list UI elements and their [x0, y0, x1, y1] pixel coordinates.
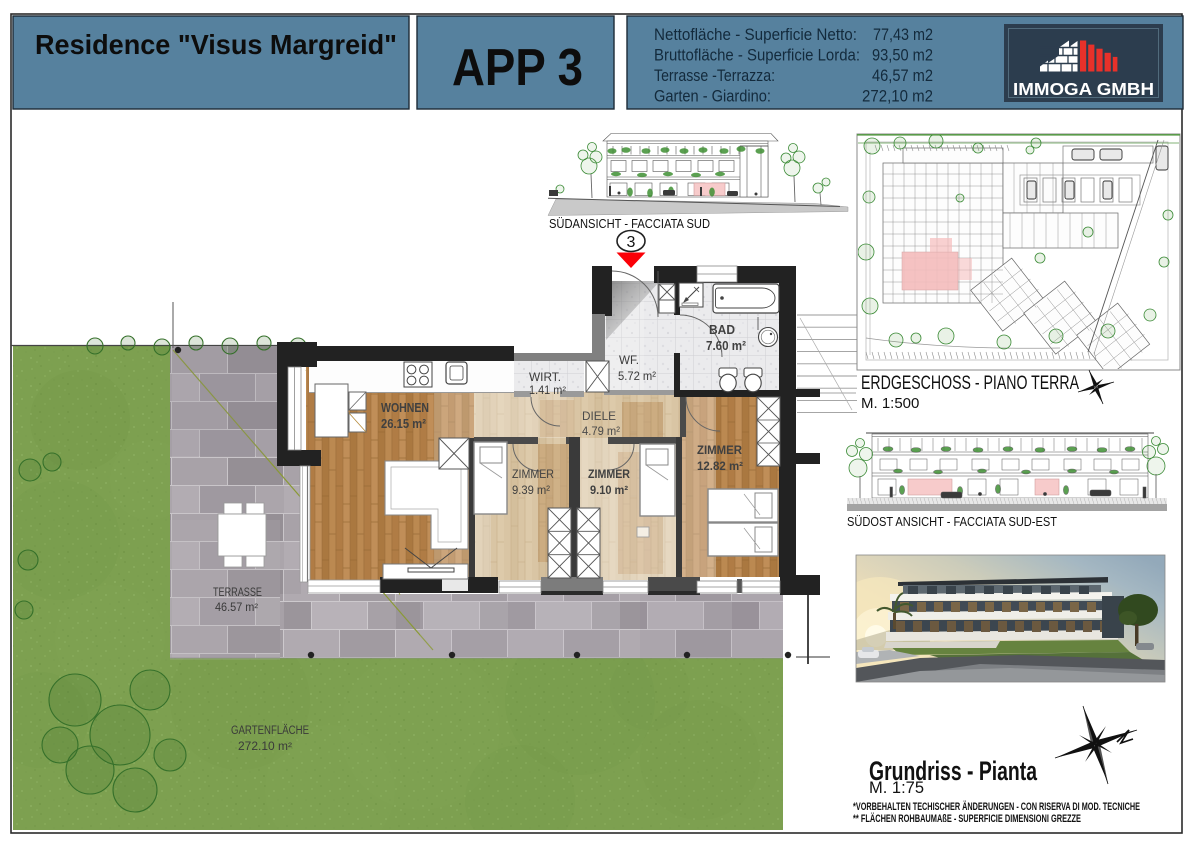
svg-text:*VORBEHALTEN TECHISCHER ÄNDERU: *VORBEHALTEN TECHISCHER ÄNDERUNGEN - CON… [853, 800, 1140, 813]
svg-text:272.10 m²: 272.10 m² [238, 741, 292, 753]
svg-text:Nettofläche - Superficie Netto: Nettofläche - Superficie Netto: [654, 26, 857, 44]
svg-text:1.41 m²: 1.41 m² [529, 385, 566, 397]
svg-text:WIRT.: WIRT. [529, 372, 561, 384]
svg-text:** FLÄCHEN ROHBAUMAßE - SUPERF: ** FLÄCHEN ROHBAUMAßE - SUPERFICIE DIMEN… [853, 812, 1081, 825]
svg-text:Bruttofläche - Superficie Lord: Bruttofläche - Superficie Lorda: [654, 47, 860, 65]
svg-text:ZIMMER: ZIMMER [512, 467, 554, 481]
svg-text:ZIMMER: ZIMMER [697, 443, 742, 457]
svg-text:SÜDANSICHT - FACCIATA SUD: SÜDANSICHT - FACCIATA SUD [549, 216, 710, 231]
svg-text:TERRASSE: TERRASSE [213, 587, 262, 599]
svg-text:DIELE: DIELE [582, 409, 616, 423]
svg-text:26.15 m²: 26.15 m² [381, 417, 426, 431]
svg-text:46,57 m2: 46,57 m2 [872, 67, 933, 85]
svg-text:GARTENFLÄCHE: GARTENFLÄCHE [231, 725, 309, 737]
svg-text:Garten - Giardino:: Garten - Giardino: [654, 88, 771, 106]
svg-text:46.57 m²: 46.57 m² [215, 602, 258, 614]
svg-text:93,50 m2: 93,50 m2 [872, 47, 933, 65]
svg-text:77,43 m2: 77,43 m2 [873, 26, 933, 44]
svg-text:Residence "Visus Margreid": Residence "Visus Margreid" [35, 29, 397, 60]
svg-text:5.72 m²: 5.72 m² [618, 369, 656, 383]
svg-text:APP 3: APP 3 [452, 39, 583, 97]
svg-text:7.60 m²: 7.60 m² [706, 339, 746, 353]
svg-text:4.79 m²: 4.79 m² [582, 424, 620, 438]
svg-text:ZIMMER: ZIMMER [588, 467, 630, 481]
svg-text:SÜDOST ANSICHT - FACCIATA SUD-: SÜDOST ANSICHT - FACCIATA SUD-EST [847, 514, 1057, 529]
svg-text:M. 1:75: M. 1:75 [869, 779, 924, 797]
svg-text:12.82 m²: 12.82 m² [697, 459, 743, 473]
svg-text:3: 3 [627, 234, 636, 251]
svg-text:9.10 m²: 9.10 m² [590, 483, 628, 497]
svg-text:9.39 m²: 9.39 m² [512, 483, 550, 497]
svg-text:Terrasse -Terrazza:: Terrasse -Terrazza: [654, 67, 775, 85]
svg-text:WF.: WF. [619, 353, 639, 367]
svg-text:M. 1:500: M. 1:500 [861, 395, 919, 412]
svg-text:BAD: BAD [709, 323, 735, 337]
svg-text:272,10 m2: 272,10 m2 [862, 88, 933, 106]
svg-text:IMMOGA GMBH: IMMOGA GMBH [1013, 79, 1154, 99]
svg-text:ERDGESCHOSS - PIANO TERRA: ERDGESCHOSS - PIANO TERRA [861, 373, 1079, 394]
svg-text:WOHNEN: WOHNEN [381, 401, 429, 415]
